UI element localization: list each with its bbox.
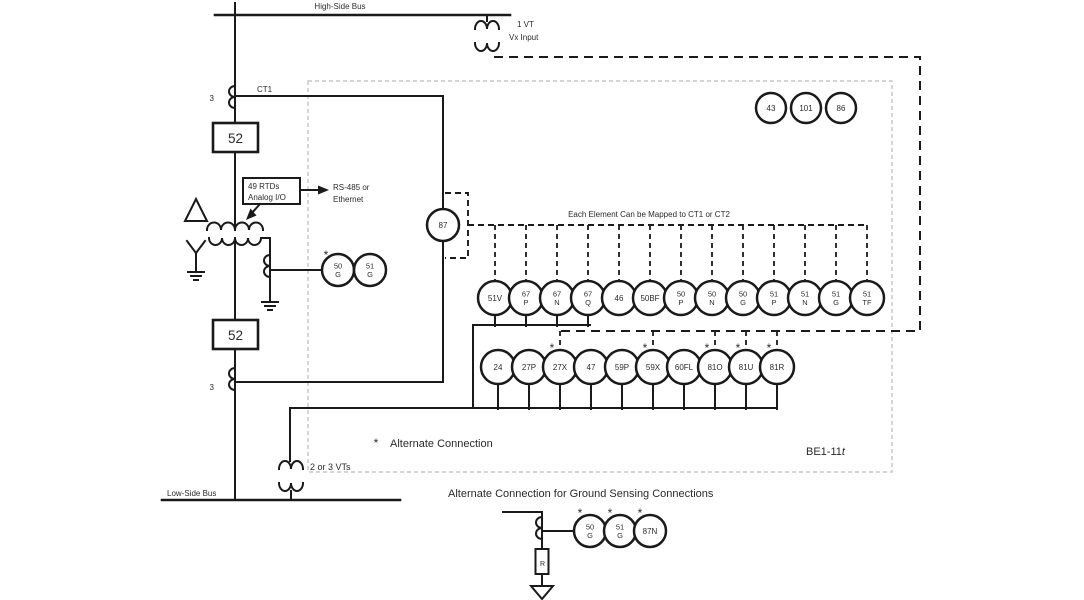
element-46-label: 46 (615, 294, 624, 303)
rtd-box-label-line1: 49 RTDs (248, 182, 279, 191)
ct1-phase-count: 3 (210, 94, 215, 103)
device-name-suffix: t (842, 446, 846, 458)
element-43-label: 43 (767, 104, 776, 113)
element-24-label: 24 (494, 363, 503, 372)
element-59X-label: 59X (646, 363, 661, 372)
ground-sensing-title: Alternate Connection for Ground Sensing … (448, 488, 714, 500)
element-50G-label: 50G (334, 262, 342, 280)
rtd-box-label-line2: Analog I/O (248, 193, 286, 202)
element-51G-label: 51G (616, 523, 624, 541)
alt-connection-star: * (324, 248, 329, 262)
element-51G-label: 51G (832, 290, 840, 308)
wye-ground-icon (187, 241, 205, 280)
device-name: BE1-11t (806, 446, 846, 458)
breaker-bottom-label: 52 (228, 328, 243, 343)
ct2-phase-count: 3 (210, 383, 215, 392)
output-bus-and-vts (279, 408, 777, 500)
comm-label-line1: RS-485 or (333, 183, 370, 192)
element-86-label: 86 (837, 104, 846, 113)
alt-connection-star: * (638, 506, 643, 520)
vt-top-label-line2: Vx Input (509, 33, 539, 42)
comm-arrowhead-icon (318, 186, 329, 195)
high-side-bus-label: High-Side Bus (314, 2, 365, 11)
element-87-label: 87 (439, 221, 448, 230)
alternate-note: Alternate Connection (390, 438, 493, 450)
relay-boundary-box (308, 81, 892, 472)
element-59P-label: 59P (615, 363, 629, 372)
alt-connection-star: * (608, 506, 613, 520)
element-51G-label: 51G (366, 262, 374, 280)
element-51V-label: 51V (488, 294, 503, 303)
element-81R-label: 81R (770, 363, 785, 372)
element-60FL-label: 60FL (675, 363, 694, 372)
mapping-note: Each Element Can be Mapped to CT1 or CT2 (568, 210, 730, 219)
alt-connection-star: * (643, 341, 648, 355)
oneline-diagram: 51V67P67N67Q4650BF50P50N50G51P51N51G51TF… (0, 0, 1084, 600)
alt-connection-star: * (705, 341, 710, 355)
element-81O-label: 81O (707, 363, 722, 372)
low-side-bus-label: Low-Side Bus (167, 489, 216, 498)
vt-top-symbol (475, 15, 499, 51)
resistor-label: R (540, 561, 545, 568)
ground-arrow-icon (531, 586, 553, 599)
element-101-label: 101 (799, 104, 813, 113)
ct1-label: CT1 (257, 85, 273, 94)
vts-bottom-label: 2 or 3 VTs (310, 462, 351, 472)
element-27P-label: 27P (522, 363, 536, 372)
ground-sensing-elements: 50G*51G*87N* (574, 506, 666, 547)
alt-connection-star: * (578, 506, 583, 520)
element-67Q-label: 67Q (584, 290, 592, 308)
alt-connection-star: * (767, 341, 772, 355)
element-27X-label: 27X (553, 363, 568, 372)
delta-winding-icon (185, 199, 207, 221)
relay-elements-row1: 51V67P67N67Q4650BF50P50N50G51P51N51G51TF (478, 225, 884, 326)
element-50G-label: 50G (739, 290, 747, 308)
comm-label-line2: Ethernet (333, 195, 364, 204)
control-elements-row: 4310186 (756, 93, 856, 123)
element-47-label: 47 (587, 363, 596, 372)
element-51TF-label: 51TF (862, 290, 872, 308)
element-50BF-label: 50BF (640, 294, 659, 303)
alt-connection-star: * (374, 436, 379, 450)
alt-connection-star: * (736, 341, 741, 355)
relay-elements-row2: 2427P27X*4759P59X*60FL81O*81U*81R* (481, 331, 794, 409)
device-name-main: BE1-11 (806, 446, 842, 458)
vt-top-label-line1: 1 VT (517, 20, 534, 29)
alt-connection-star: * (550, 341, 555, 355)
element-81U-label: 81U (739, 363, 754, 372)
breaker-top-label: 52 (228, 131, 243, 146)
transformer-ground-elements: 50G*51G (322, 248, 386, 286)
element-50G-label: 50G (586, 523, 594, 541)
element-87N-label: 87N (643, 527, 658, 536)
